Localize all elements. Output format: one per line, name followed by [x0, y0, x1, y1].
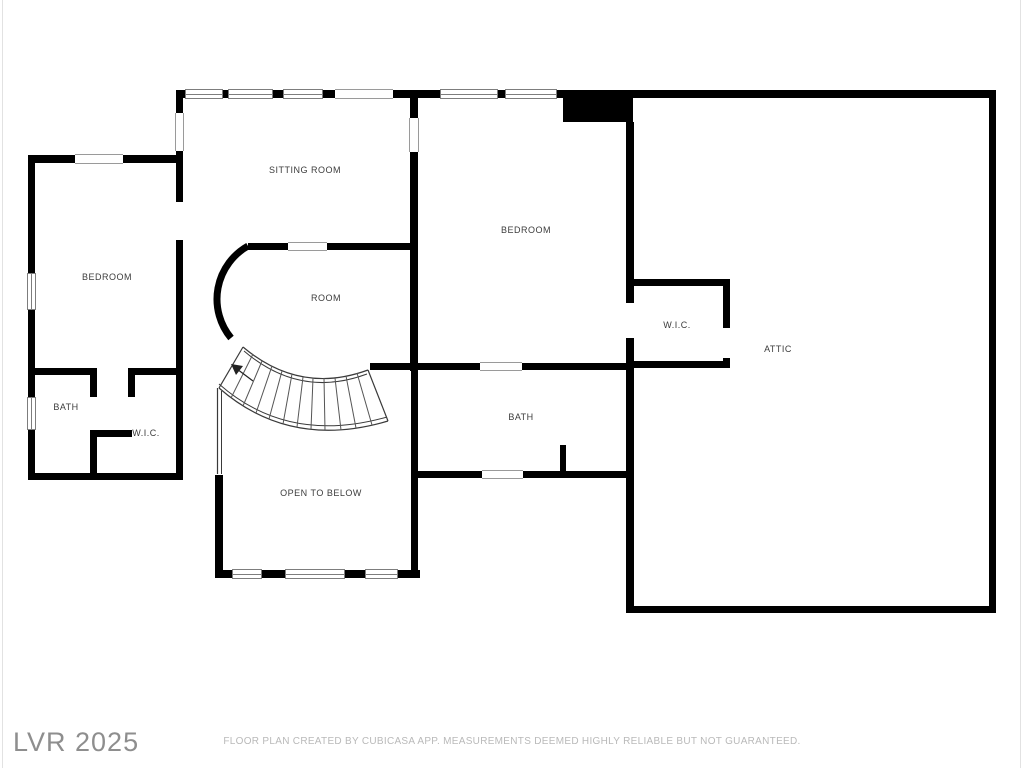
page-border-line-right	[1020, 0, 1021, 768]
wall-bath-stub	[560, 445, 566, 473]
wall-wic-top	[626, 279, 730, 286]
wall-attic-left-lower	[626, 368, 634, 613]
window	[27, 397, 36, 430]
wall-leftblock-left	[28, 155, 35, 480]
wall-attic-right	[989, 90, 996, 613]
floor-plan-page: SITTING ROOM BEDROOM ROOM BEDROOM W.I.C.…	[0, 0, 1024, 768]
room-label-bedroom-left: BEDROOM	[82, 272, 132, 282]
room-label-attic: ATTIC	[764, 344, 792, 354]
window	[440, 89, 498, 99]
window	[228, 89, 273, 99]
room-label-bath-left: BATH	[53, 402, 78, 412]
wall-wic-bottom	[626, 361, 730, 368]
wall-opening	[409, 118, 419, 152]
window	[27, 273, 36, 310]
footer-disclaimer: FLOOR PLAN CREATED BY CUBICASA APP. MEAS…	[223, 736, 800, 747]
wall-leftblock-bottom	[28, 473, 183, 480]
wall-openbelow-left	[215, 475, 223, 578]
room-label-open-to-below: OPEN TO BELOW	[280, 488, 362, 498]
wall-opening	[482, 470, 523, 479]
wall-opening	[288, 242, 327, 251]
window	[505, 89, 557, 99]
wall-room-top	[248, 243, 413, 250]
door-opening-vestibule	[97, 367, 128, 376]
wall-opening	[75, 154, 123, 164]
wall-wicleft-horizontal	[90, 430, 132, 437]
wall-bath-bottom	[413, 471, 634, 478]
watermark-text: LVR 2025	[13, 727, 139, 758]
room-label-wic-left: W.I.C.	[132, 428, 160, 438]
wall-attic-bottom	[627, 606, 996, 613]
wall-openbelow-right	[411, 371, 418, 578]
door-opening-bath-left	[89, 397, 98, 430]
room-label-bedroom-center: BEDROOM	[501, 225, 551, 235]
window	[283, 89, 323, 99]
page-border-line-left	[2, 0, 3, 768]
window	[285, 569, 345, 579]
wall-vestibule-right	[128, 368, 135, 397]
wall-solid-block	[563, 90, 633, 122]
wall-opening	[175, 113, 184, 151]
curved-wall	[217, 246, 248, 338]
door-opening-wic-attic	[722, 328, 731, 358]
room-label-room: ROOM	[311, 293, 341, 303]
staircase-and-curved-wall	[0, 0, 1024, 768]
window	[185, 89, 223, 99]
window	[365, 569, 398, 579]
room-label-sitting-room: SITTING ROOM	[269, 165, 341, 175]
window	[232, 569, 262, 579]
wall-opening	[335, 89, 393, 99]
room-label-bath-center: BATH	[508, 412, 533, 422]
door-opening-bedroom-wic	[625, 303, 635, 338]
door-opening-bedroom-left	[175, 202, 184, 240]
wall-opening	[480, 362, 522, 371]
room-label-wic-right: W.I.C.	[663, 320, 691, 330]
stair-direction-arrow	[237, 369, 253, 381]
